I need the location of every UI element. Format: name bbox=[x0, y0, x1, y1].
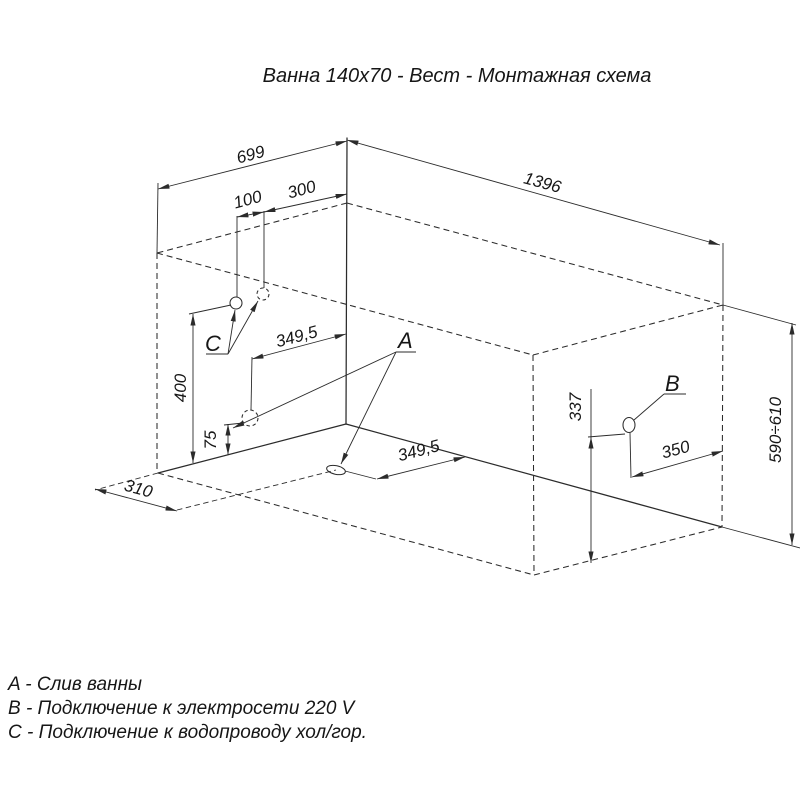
label-a: A bbox=[396, 328, 413, 353]
dim-c-from-edge: 300 bbox=[285, 177, 318, 203]
box-hidden-edges bbox=[157, 203, 723, 575]
dim-drain-height: 75 bbox=[201, 430, 220, 449]
legend-item-a: A - Слив ванны bbox=[7, 674, 142, 695]
legend-item-b: B - Подключение к электросети 220 V bbox=[8, 698, 357, 719]
legend: A - Слив ванны B - Подключение к электро… bbox=[7, 674, 367, 743]
drawing-title: Ванна 140x70 - Вест - Монтажная схема bbox=[263, 65, 652, 87]
legend-item-c: C - Подключение к водопроводу хол/гор. bbox=[8, 722, 367, 743]
dim-top-length: 1396 bbox=[522, 169, 564, 197]
dim-b-from-edge: 350 bbox=[659, 437, 692, 463]
installation-scheme-page: Ванна 140x70 - Вест - Монтажная схема bbox=[0, 0, 800, 800]
water-port-2-circle bbox=[257, 288, 269, 300]
dimension-lines bbox=[95, 140, 792, 563]
installation-diagram: Ванна 140x70 - Вест - Монтажная схема bbox=[0, 0, 800, 800]
dim-total-height: 590÷610 bbox=[766, 396, 785, 463]
dim-c-spacing: 100 bbox=[231, 187, 264, 213]
dimension-labels: 699 1396 100 300 349,5 400 75 349,5 310 … bbox=[122, 142, 785, 502]
leader-lines bbox=[206, 301, 686, 464]
electric-port-circle bbox=[623, 418, 635, 433]
water-port-1-circle bbox=[230, 297, 242, 309]
dim-b-height: 337 bbox=[566, 392, 585, 421]
dim-drain-floor-offset: 349,5 bbox=[396, 436, 443, 465]
label-c: C bbox=[205, 331, 221, 356]
dim-c-height: 400 bbox=[171, 373, 190, 402]
dim-top-width: 699 bbox=[234, 142, 267, 168]
label-b: B bbox=[665, 371, 680, 396]
drain-side-circle bbox=[242, 410, 258, 426]
